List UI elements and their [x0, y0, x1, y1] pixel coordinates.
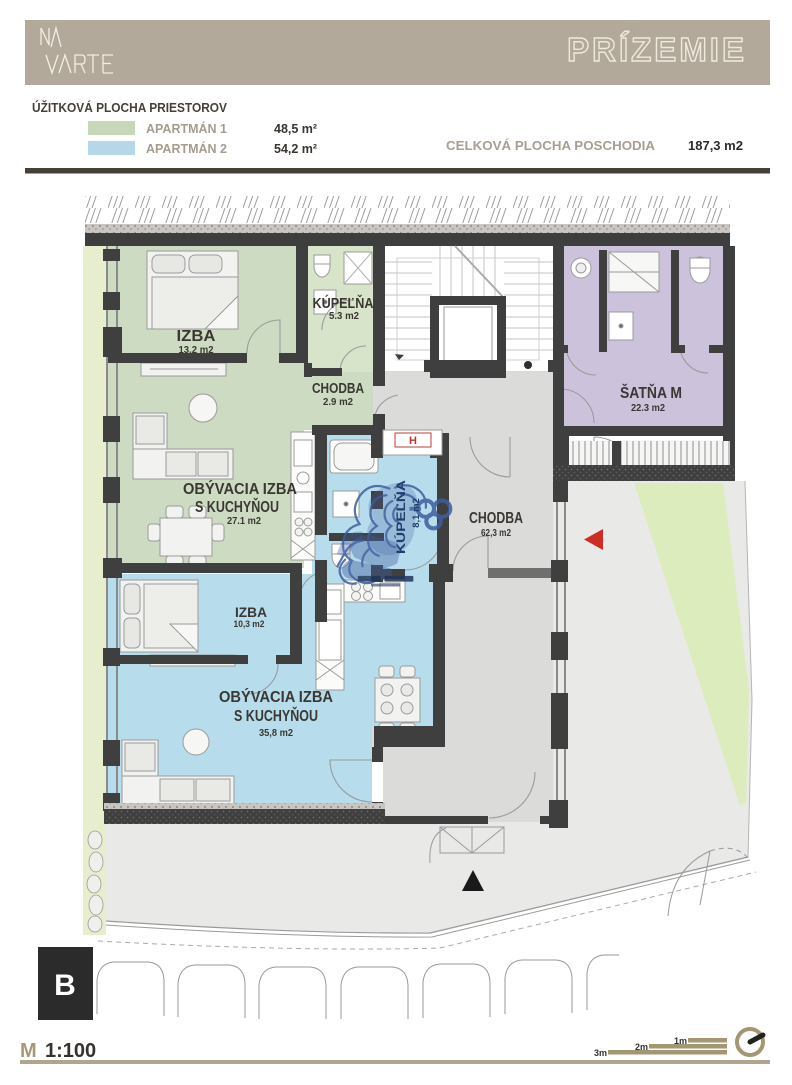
- svg-text:35,8 m2: 35,8 m2: [259, 728, 293, 739]
- svg-text:3m: 3m: [594, 1048, 607, 1058]
- svg-text:187,3 m2: 187,3 m2: [688, 138, 743, 153]
- svg-text:62,3 m2: 62,3 m2: [481, 528, 511, 539]
- svg-text:48,5 m²: 48,5 m²: [274, 122, 317, 136]
- svg-text:ÚŽITKOVÁ PLOCHA PRIESTOROV: ÚŽITKOVÁ PLOCHA PRIESTOROV: [32, 100, 228, 115]
- svg-text:APARTMÁN 1: APARTMÁN 1: [146, 121, 227, 136]
- svg-text:M: M: [20, 1040, 37, 1062]
- svg-text:13.2 m2: 13.2 m2: [179, 345, 214, 356]
- svg-text:S KUCHYŇOU: S KUCHYŇOU: [195, 498, 279, 516]
- svg-text:IZBA: IZBA: [235, 604, 267, 620]
- svg-text:S KUCHYŇOU: S KUCHYŇOU: [234, 707, 318, 725]
- svg-text:54,2 m²: 54,2 m²: [274, 142, 317, 156]
- svg-text:5.3 m2: 5.3 m2: [329, 311, 359, 322]
- svg-text:PRÍZEMIE: PRÍZEMIE: [567, 31, 747, 68]
- svg-text:CHODBA: CHODBA: [469, 510, 523, 527]
- svg-text:APARTMÁN 2: APARTMÁN 2: [146, 141, 227, 156]
- svg-text:CHODBA: CHODBA: [312, 381, 364, 397]
- svg-text:22.3 m2: 22.3 m2: [631, 402, 665, 414]
- svg-text:1:100: 1:100: [45, 1040, 96, 1062]
- svg-text:OBÝVACIA IZBA: OBÝVACIA IZBA: [183, 480, 297, 498]
- svg-text:1m: 1m: [674, 1036, 687, 1046]
- svg-text:10,3 m2: 10,3 m2: [234, 619, 265, 630]
- svg-text:B: B: [54, 969, 76, 1002]
- svg-text:ŠATŇA M: ŠATŇA M: [620, 384, 682, 402]
- svg-text:27.1 m2: 27.1 m2: [227, 516, 261, 527]
- svg-text:2m: 2m: [635, 1042, 648, 1052]
- svg-text:8,1 m2: 8,1 m2: [411, 498, 422, 528]
- svg-text:OBÝVACIA IZBA: OBÝVACIA IZBA: [219, 688, 333, 706]
- svg-text:IZBA: IZBA: [177, 328, 216, 345]
- svg-text:2.9 m2: 2.9 m2: [323, 397, 353, 408]
- svg-text:KÚPEĽŇA: KÚPEĽŇA: [313, 294, 374, 312]
- svg-text:KÚPEĽŇA: KÚPEĽŇA: [393, 480, 408, 554]
- svg-text:CELKOVÁ PLOCHA POSCHODIA: CELKOVÁ PLOCHA POSCHODIA: [446, 138, 655, 153]
- svg-text:H: H: [409, 435, 417, 447]
